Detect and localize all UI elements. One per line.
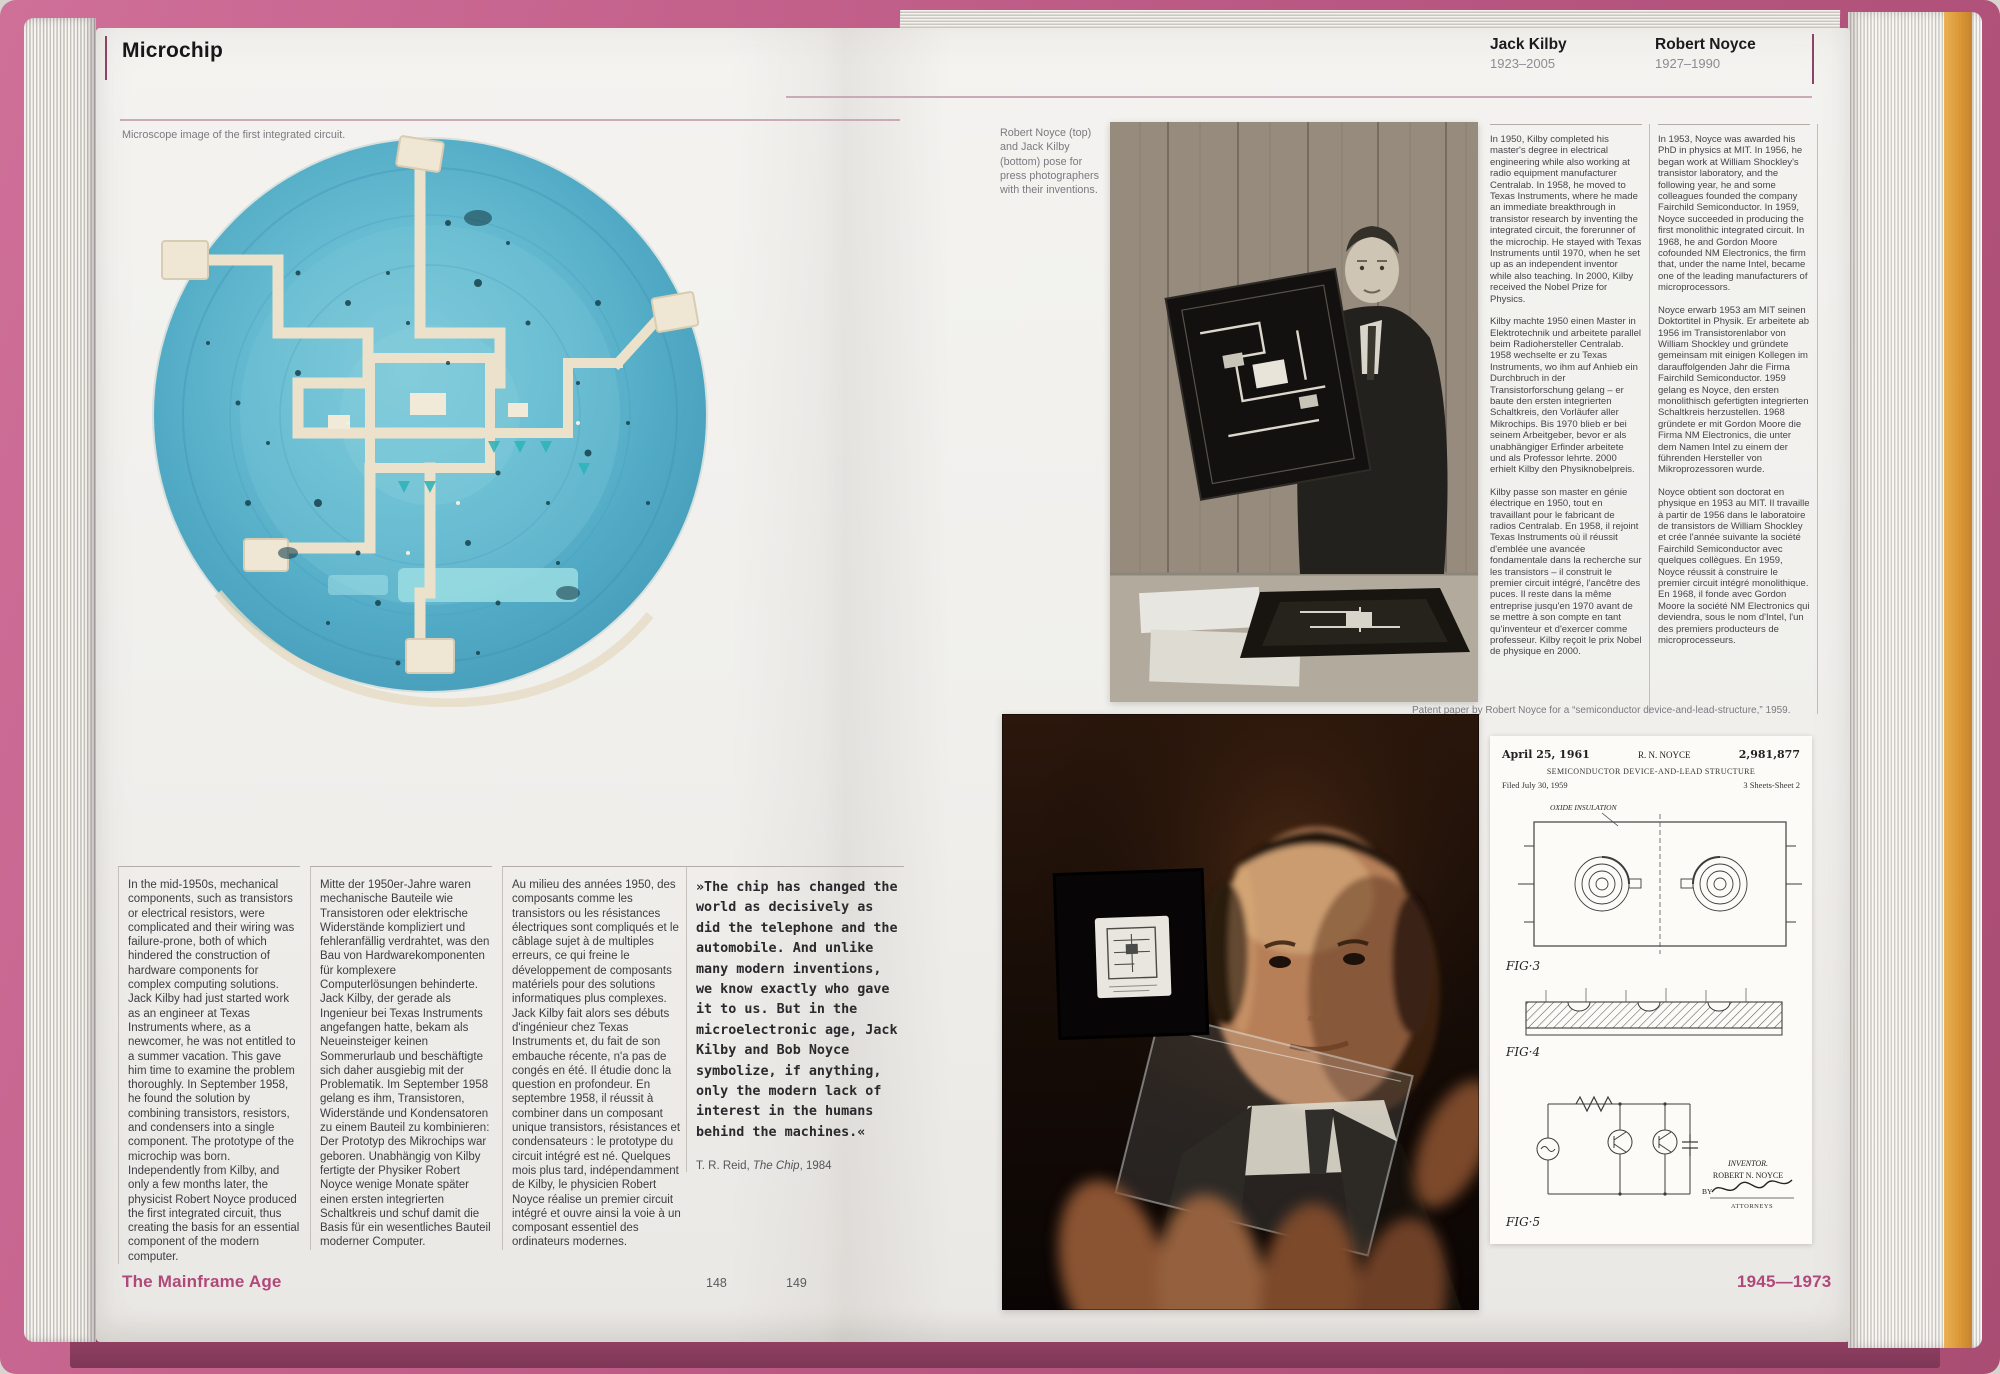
header-kilby: Jack Kilby 1923–2005 bbox=[1490, 36, 1567, 71]
intro-column-german: Mitte der 1950er-Jahre waren mechanische… bbox=[310, 866, 492, 1250]
patent-signature bbox=[1712, 1180, 1792, 1192]
microchip-image bbox=[148, 123, 712, 707]
patent-fig4-label: FIG·4 bbox=[1505, 1045, 1540, 1059]
patent-date: April 25, 1961 bbox=[1502, 748, 1590, 761]
patent-attorneys-label: ATTORNEYS bbox=[1731, 1203, 1773, 1210]
patent-document: April 25, 1961 R. N. NOYCE 2,981,877 SEM… bbox=[1490, 736, 1812, 1244]
left-page-number: 148 bbox=[706, 1276, 727, 1290]
patent-inventor-name: ROBERT N. NOYCE bbox=[1713, 1171, 1783, 1180]
right-header-rule bbox=[1812, 34, 1814, 84]
patent-filed: Filed July 30, 1959 bbox=[1502, 780, 1568, 790]
patent-inventor-header: R. N. NOYCE bbox=[1638, 750, 1691, 760]
patent-title: SEMICONDUCTOR DEVICE-AND-LEAD STRUCTURE bbox=[1490, 767, 1812, 776]
intro-text-german: Mitte der 1950er-Jahre waren mechanische… bbox=[320, 878, 492, 1250]
bio-margin-rule bbox=[1817, 124, 1818, 714]
quote-attr-title: The Chip bbox=[753, 1160, 800, 1172]
noyce-bio-french: Noyce obtient son doctorat en physique e… bbox=[1658, 487, 1810, 647]
left-page-title: Microchip bbox=[122, 40, 223, 61]
page-edges-top bbox=[900, 10, 1840, 30]
kilby-slide-photo bbox=[1002, 714, 1479, 1310]
bio-column-divider bbox=[1649, 124, 1650, 714]
patent-oxide-label: OXIDE INSULATION bbox=[1550, 803, 1618, 812]
patent-by-label: BY bbox=[1702, 1187, 1713, 1196]
noyce-name: Robert Noyce bbox=[1655, 36, 1756, 54]
patent-filing-row: Filed July 30, 1959 3 Sheets-Sheet 2 bbox=[1502, 780, 1800, 790]
left-footer-label: The Mainframe Age bbox=[122, 1272, 282, 1292]
kilby-years: 1923–2005 bbox=[1490, 56, 1567, 71]
kilby-bio-english: In 1950, Kilby completed his master's de… bbox=[1490, 134, 1642, 305]
page-edges-left bbox=[24, 18, 96, 1342]
kilby-bio-column: In 1950, Kilby completed his master's de… bbox=[1490, 124, 1642, 669]
noyce-bio-column: In 1953, Noyce was awarded his PhD in ph… bbox=[1658, 124, 1810, 657]
quote-attr-author: T. R. Reid, bbox=[696, 1160, 753, 1172]
right-header-divider bbox=[786, 96, 1812, 98]
right-page-number: 149 bbox=[786, 1276, 807, 1290]
patent-inventor-label: INVENTOR. bbox=[1727, 1159, 1768, 1168]
right-footer-label: 1945—1973 bbox=[1737, 1272, 1831, 1292]
patent-sheets: 3 Sheets-Sheet 2 bbox=[1743, 780, 1800, 790]
noyce-press-photo bbox=[1110, 122, 1478, 702]
kilby-bio-french: Kilby passe son master en génie électriq… bbox=[1490, 487, 1642, 658]
page-edge-orange-band bbox=[1944, 12, 1972, 1348]
noyce-kilby-photo-caption: Robert Noyce (top) and Jack Kilby (botto… bbox=[1000, 126, 1102, 197]
header-noyce: Robert Noyce 1927–1990 bbox=[1655, 36, 1756, 71]
noyce-bio-german: Noyce erwarb 1953 am MIT seinen Doktorti… bbox=[1658, 305, 1810, 476]
quote-attr-year: , 1984 bbox=[800, 1160, 832, 1172]
pull-quote-attribution: T. R. Reid, The Chip, 1984 bbox=[696, 1160, 904, 1172]
kilby-name: Jack Kilby bbox=[1490, 36, 1567, 54]
intro-text-french: Au milieu des années 1950, des composant… bbox=[512, 878, 688, 1250]
noyce-years: 1927–1990 bbox=[1655, 56, 1756, 71]
patent-number: 2,981,877 bbox=[1739, 748, 1800, 761]
intro-column-french: Au milieu des années 1950, des composant… bbox=[502, 866, 688, 1250]
book-cover-bottom-shadow bbox=[70, 1338, 1940, 1368]
book-spread-photo: Microchip Microscope image of the first … bbox=[0, 0, 2000, 1374]
left-header-rule bbox=[105, 36, 107, 80]
pull-quote-column: »The chip has changed the world as decis… bbox=[686, 866, 904, 1172]
patent-fig5-label: FIG·5 bbox=[1505, 1215, 1540, 1229]
patent-figures: OXIDE INSULATION FIG·3 bbox=[1490, 794, 1812, 1244]
noyce-bio-english: In 1953, Noyce was awarded his PhD in ph… bbox=[1658, 134, 1810, 294]
patent-fig3-label: FIG·3 bbox=[1505, 959, 1540, 973]
patent-header-row: April 25, 1961 R. N. NOYCE 2,981,877 bbox=[1502, 748, 1800, 761]
kilby-bio-german: Kilby machte 1950 einen Master in Elektr… bbox=[1490, 316, 1642, 476]
pull-quote-text: »The chip has changed the world as decis… bbox=[696, 878, 904, 1143]
intro-column-english: In the mid-1950s, mechanical components,… bbox=[118, 866, 300, 1264]
left-header-divider bbox=[120, 119, 900, 121]
intro-text-english: In the mid-1950s, mechanical components,… bbox=[128, 878, 300, 1264]
